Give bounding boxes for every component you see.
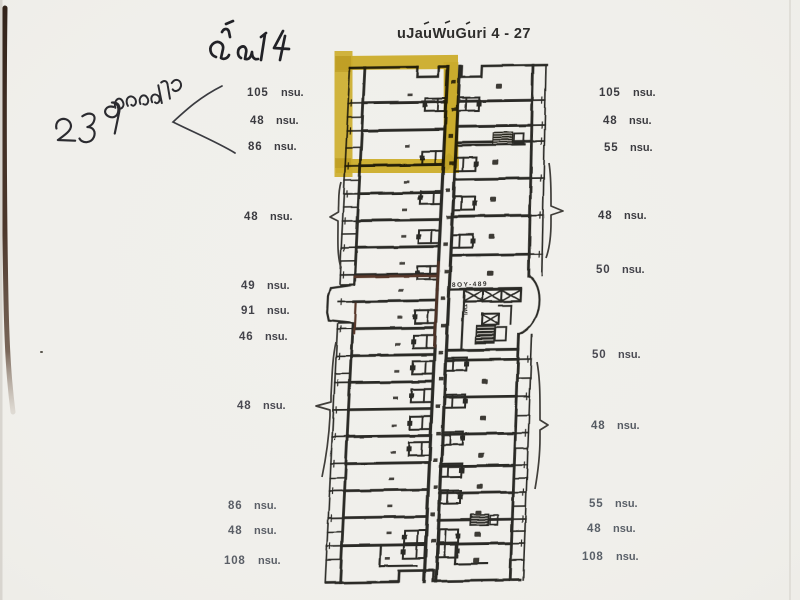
svg-text:nsu.: nsu. [615, 498, 638, 510]
svg-text:105: 105 [599, 87, 621, 99]
svg-text:50: 50 [592, 349, 606, 361]
svg-text:48: 48 [237, 400, 251, 412]
svg-text:nsu.: nsu. [274, 141, 297, 153]
svg-text:46: 46 [239, 331, 253, 343]
svg-text:48: 48 [244, 211, 258, 223]
svg-text:nsu.: nsu. [265, 331, 288, 343]
svg-text:TWL: TWL [461, 304, 467, 318]
svg-text:48: 48 [603, 115, 617, 127]
svg-text:nsu.: nsu. [616, 551, 639, 563]
svg-text:nsu.: nsu. [281, 87, 304, 99]
svg-text:108: 108 [582, 551, 604, 563]
svg-text:55: 55 [589, 498, 603, 510]
svg-text:48: 48 [591, 420, 605, 432]
svg-text:48: 48 [250, 115, 264, 127]
svg-text:91: 91 [241, 305, 255, 317]
svg-text:nsu.: nsu. [629, 115, 652, 127]
svg-text:108: 108 [224, 555, 246, 567]
svg-text:nsu.: nsu. [622, 264, 645, 276]
svg-text:nsu.: nsu. [613, 523, 636, 535]
svg-text:nsu.: nsu. [263, 400, 286, 412]
svg-text:uJauWuGuri 4 - 27: uJauWuGuri 4 - 27 [397, 26, 531, 42]
svg-text:nsu.: nsu. [624, 210, 647, 222]
svg-text:nsu.: nsu. [270, 211, 293, 223]
svg-text:86: 86 [228, 500, 242, 512]
svg-text:nsu.: nsu. [618, 349, 641, 361]
svg-text:nsu.: nsu. [276, 115, 299, 127]
svg-text:nsu.: nsu. [267, 305, 290, 317]
svg-text:nsu.: nsu. [633, 87, 656, 99]
svg-text:nsu.: nsu. [617, 420, 640, 432]
svg-text:nsu.: nsu. [267, 280, 290, 292]
svg-text:nsu.: nsu. [630, 142, 653, 154]
svg-text:8OY-489: 8OY-489 [452, 281, 488, 289]
svg-text:nsu.: nsu. [254, 500, 277, 512]
svg-text:48: 48 [598, 210, 612, 222]
svg-text:48: 48 [587, 523, 601, 535]
svg-text:nsu.: nsu. [254, 525, 277, 537]
svg-text:49: 49 [241, 280, 255, 292]
svg-text:55: 55 [604, 142, 618, 154]
svg-text:nsu.: nsu. [258, 555, 281, 567]
svg-text:105: 105 [247, 87, 269, 99]
svg-text:86: 86 [248, 141, 262, 153]
svg-text:50: 50 [596, 264, 610, 276]
svg-text:48: 48 [228, 525, 242, 537]
